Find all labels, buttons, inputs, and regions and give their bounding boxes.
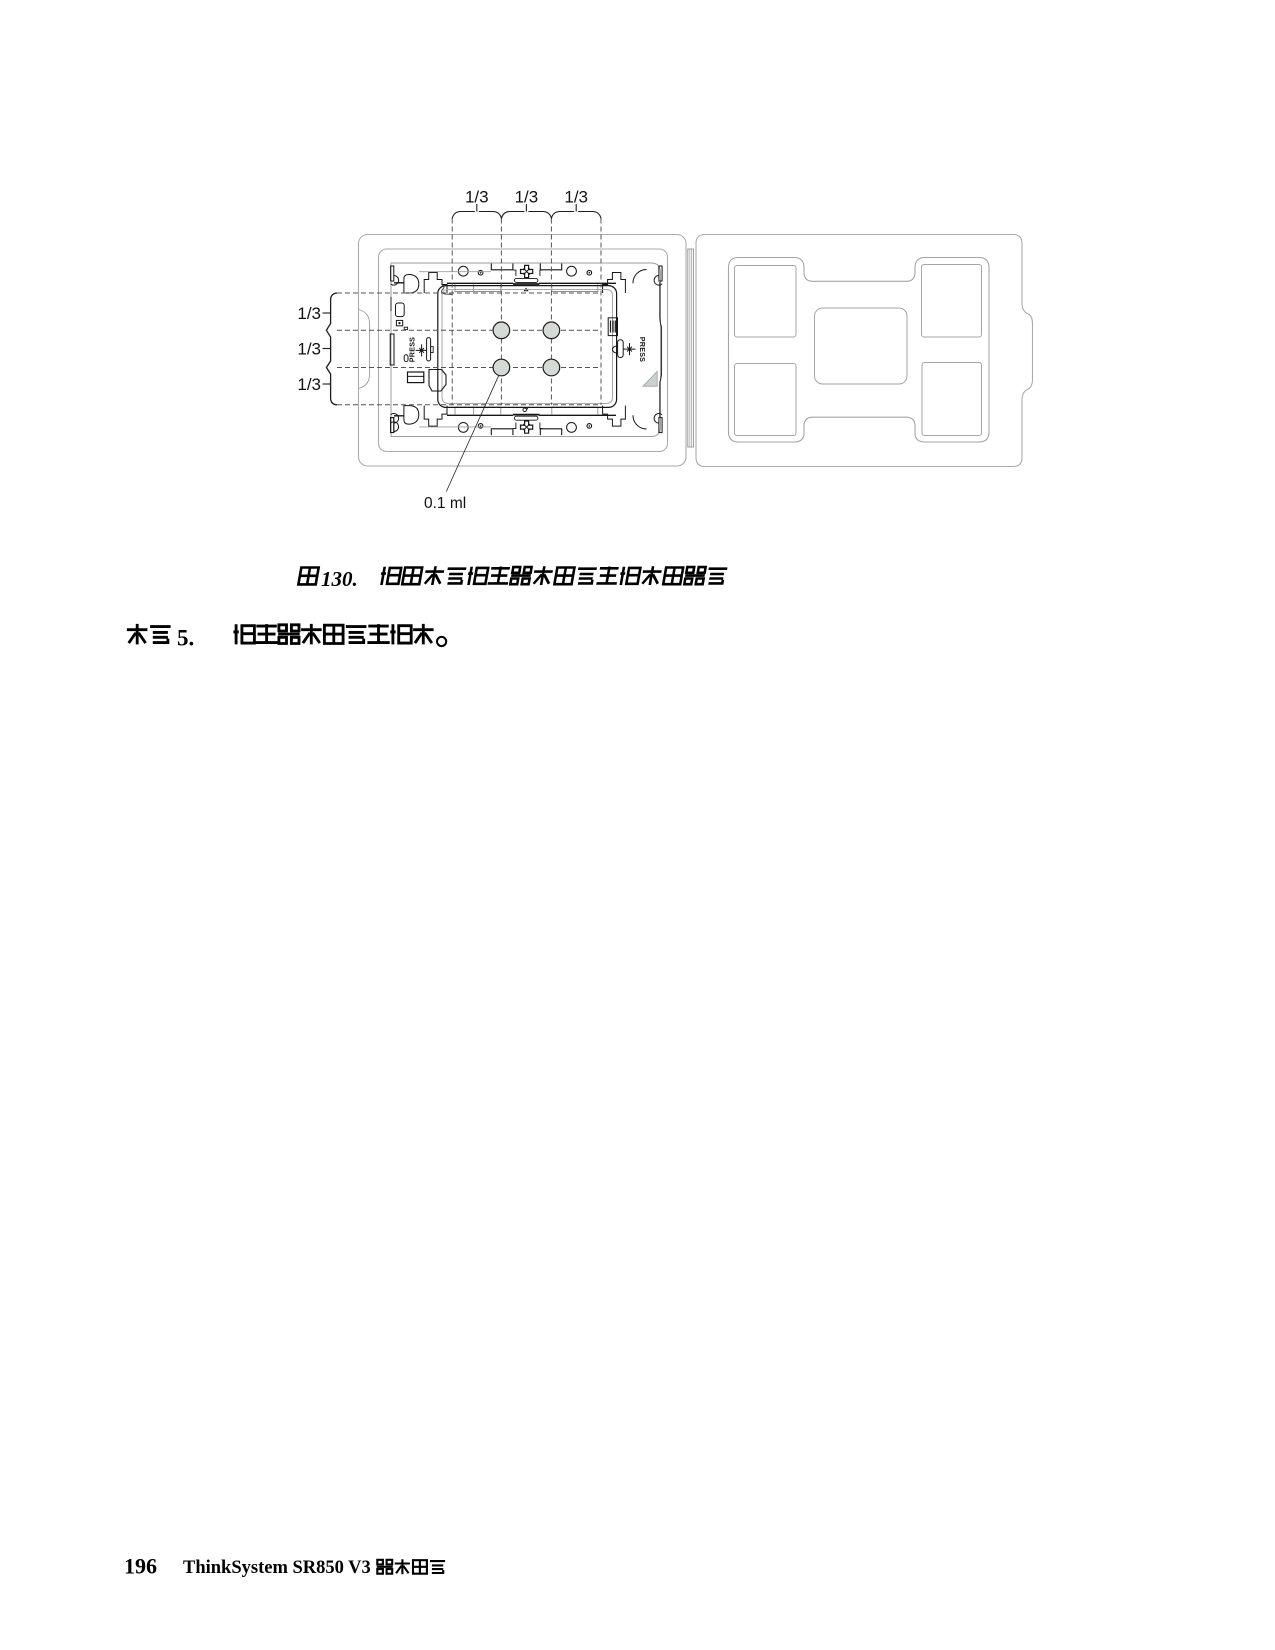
svg-text:PRESS: PRESS [638, 337, 647, 362]
svg-text:1/3: 1/3 [297, 304, 321, 323]
svg-text:5.: 5. [177, 626, 194, 651]
svg-text:1/3: 1/3 [465, 188, 489, 207]
svg-text:196: 196 [124, 1554, 157, 1579]
svg-text:1/3: 1/3 [515, 188, 539, 207]
svg-text:ThinkSystem SR850 V3: ThinkSystem SR850 V3 [183, 1558, 371, 1578]
svg-text:1/3: 1/3 [297, 375, 321, 394]
svg-text:1/3: 1/3 [564, 188, 588, 207]
svg-text:1/3: 1/3 [297, 340, 321, 359]
svg-text:PRESS: PRESS [408, 337, 417, 362]
svg-text:0.1 ml: 0.1 ml [424, 495, 466, 512]
svg-text:130.: 130. [321, 567, 358, 591]
